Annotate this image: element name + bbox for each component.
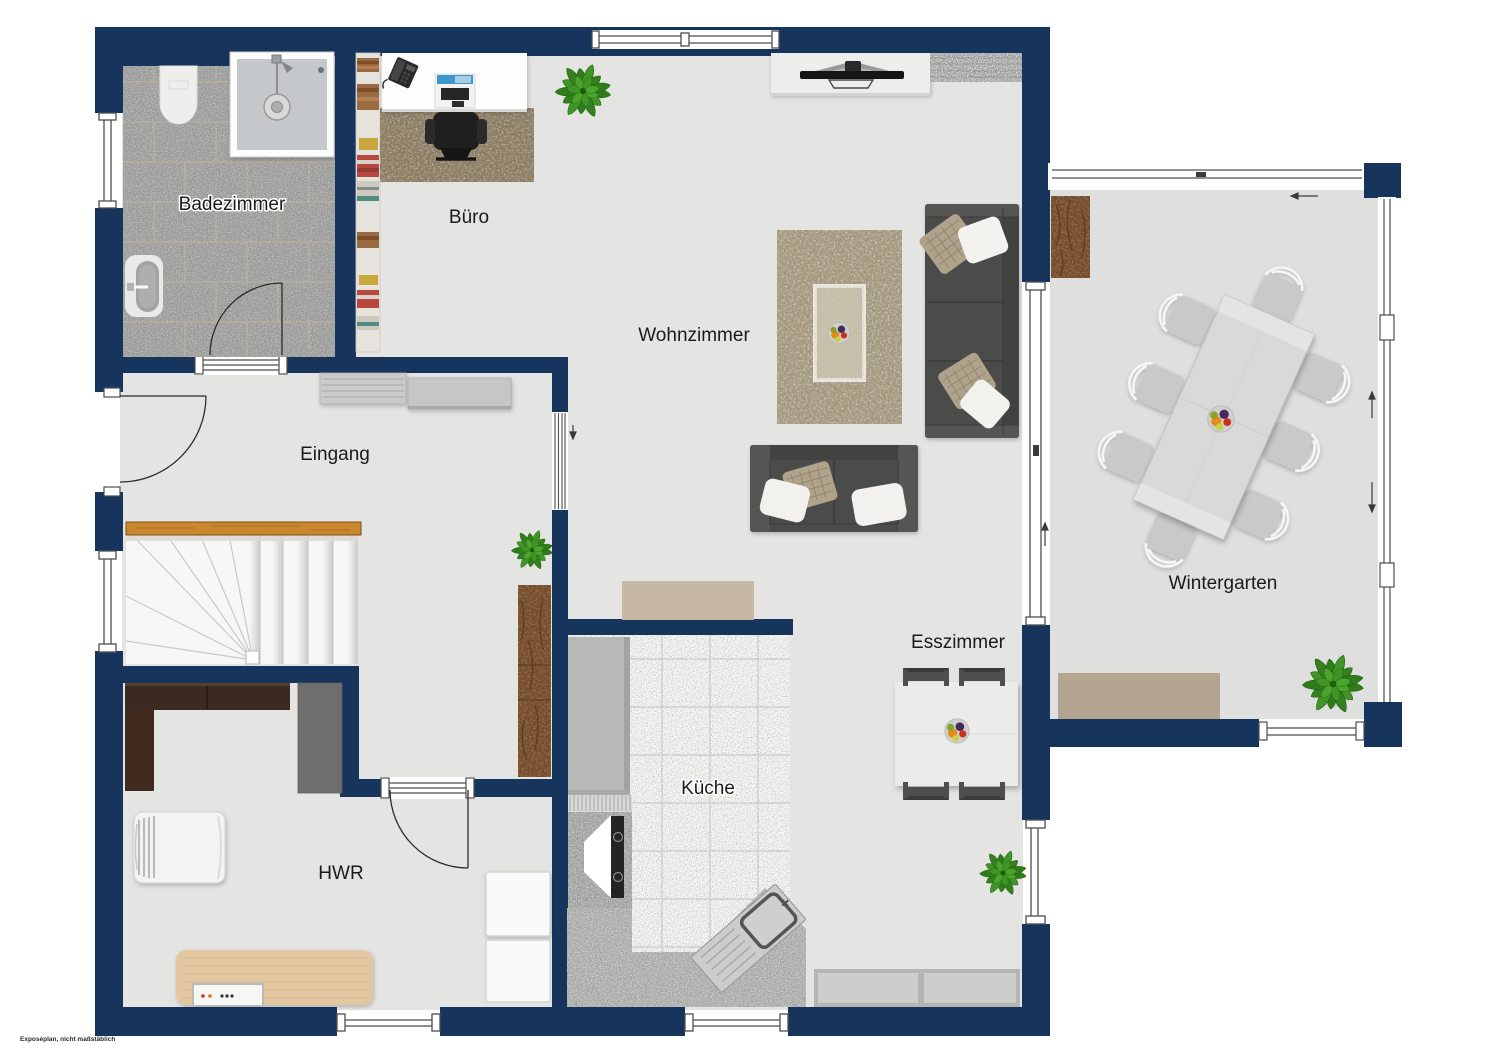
- svg-text:Wohnzimmer: Wohnzimmer: [638, 325, 750, 346]
- svg-text:HWR: HWR: [318, 863, 363, 884]
- svg-text:Eingang: Eingang: [300, 444, 370, 465]
- svg-text:Badezimmer: Badezimmer: [179, 194, 286, 215]
- svg-text:Wintergarten: Wintergarten: [1169, 573, 1278, 594]
- svg-text:Küche: Küche: [681, 778, 735, 799]
- svg-text:Exposéplan, nicht maßstäblich: Exposéplan, nicht maßstäblich: [20, 1036, 115, 1043]
- svg-text:Büro: Büro: [449, 207, 489, 228]
- svg-text:Esszimmer: Esszimmer: [911, 632, 1006, 653]
